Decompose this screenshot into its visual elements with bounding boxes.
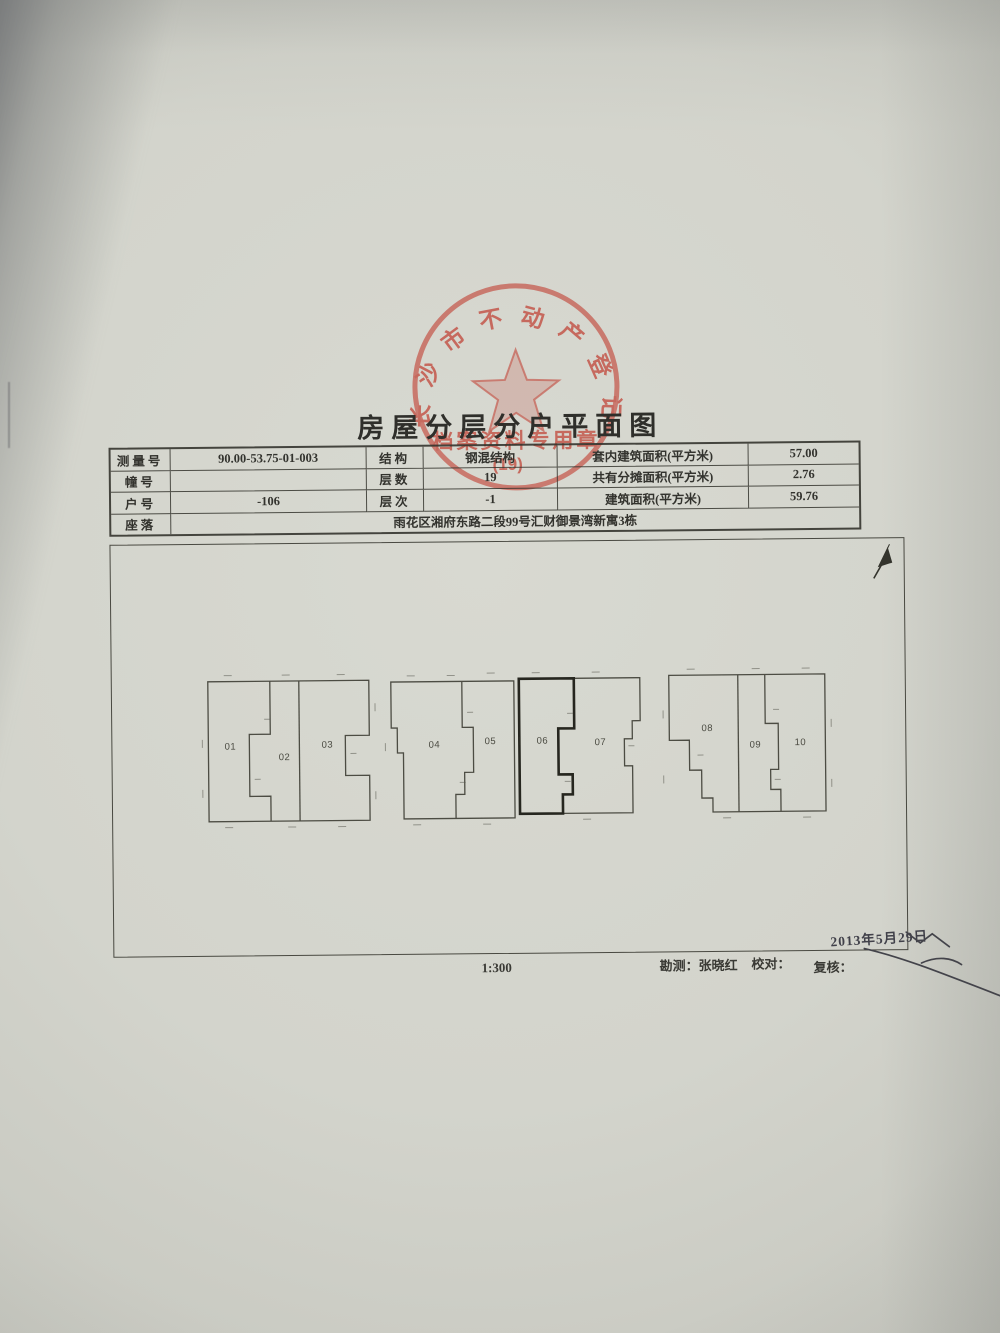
unit-label-07: 07: [595, 737, 607, 748]
property-info-table: 测量号 90.00-53.75-01-003 结构 钢混结构 套内建筑面积(平方…: [109, 441, 862, 537]
block2-outline: [391, 681, 515, 819]
unit-no-label: 户号: [111, 492, 171, 514]
shared-area-label: 共有分摊面积(平方米): [558, 465, 749, 488]
floor-plan-box: 01 02 03 04 05 06 07 08 09 10: [109, 537, 908, 958]
unit-label-01: 01: [225, 742, 237, 753]
structure-value: 钢混结构: [424, 445, 558, 468]
gross-area-value: 59.76: [749, 486, 859, 509]
inner-area-value: 57.00: [749, 443, 859, 466]
inner-area-label: 套内建筑面积(平方米): [558, 444, 749, 467]
building-no-label: 幢号: [111, 471, 171, 493]
survey-no-value: 90.00-53.75-01-003: [171, 447, 367, 470]
level-value: -1: [424, 488, 558, 511]
document-content: 长沙市不动产登记中心 档案资料专用章 (19) 房屋分层分户平面图 测量号 90…: [0, 0, 1000, 1333]
floors-label: 层数: [367, 468, 424, 490]
divider-04-05: [455, 681, 474, 818]
unit-label-03: 03: [322, 740, 334, 751]
unit-label-08: 08: [701, 723, 713, 734]
structure-label: 结构: [367, 447, 424, 469]
review-label: 复核：: [813, 957, 852, 976]
floors-value: 19: [424, 467, 558, 490]
divider-08-09: [738, 675, 739, 812]
survey-label-text: 勘测：: [659, 958, 698, 973]
unit-label-05: 05: [485, 736, 497, 747]
scale-text: 1:300: [481, 960, 511, 976]
shared-area-value: 2.76: [749, 464, 859, 487]
unit-label-06: 06: [537, 736, 549, 747]
divider-09-10: [765, 674, 781, 811]
unit-label-09: 09: [750, 739, 762, 750]
location-label: 座落: [111, 514, 171, 535]
unit-label-02: 02: [279, 752, 291, 763]
level-label: 层次: [367, 490, 424, 512]
proofread-label: 校对：: [751, 953, 790, 972]
unit-label-04: 04: [429, 740, 441, 751]
survey-no-label: 测量号: [111, 449, 171, 471]
building-no-value: [171, 469, 367, 492]
gross-area-label: 建筑面积(平方米): [558, 487, 749, 510]
survey-label: 勘测：张晓红: [659, 955, 737, 975]
north-arrow-icon: [873, 544, 891, 578]
unit-label-10: 10: [795, 737, 807, 748]
surveyor-name: 张晓红: [698, 958, 737, 973]
photographed-document: 长沙市不动产登记中心 档案资料专用章 (19) 房屋分层分户平面图 测量号 90…: [0, 0, 1000, 1333]
divider-01-02: [249, 681, 271, 821]
floor-plan-drawing: 01 02 03 04 05 06 07 08 09 10: [110, 538, 907, 957]
unit-no-value: -106: [171, 490, 367, 513]
divider-02-03: [299, 681, 300, 821]
